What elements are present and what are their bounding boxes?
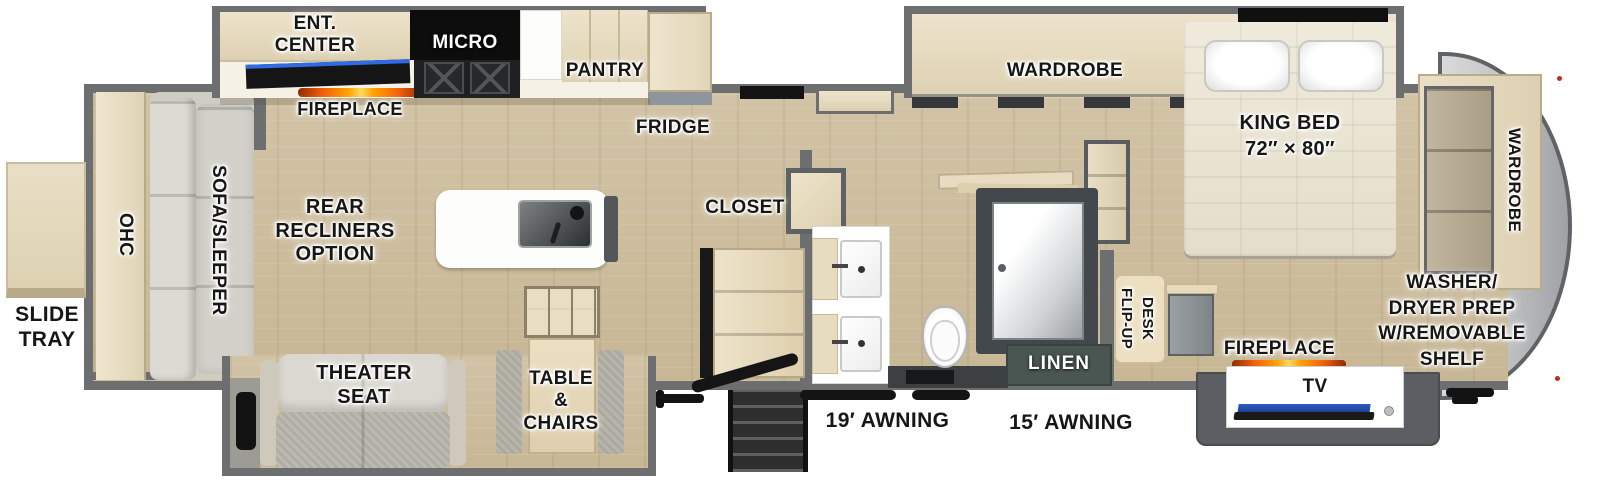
- landing-jack-foot: [1452, 396, 1478, 404]
- wardrobe-hanging-rods: [912, 94, 1190, 108]
- sink-top-drain: [858, 266, 865, 273]
- desk-bench: [1168, 294, 1214, 356]
- label-washer-dryer: WASHER/ DRYER PREP W/REMOVABLE SHELF: [1352, 270, 1552, 373]
- pillow-right: [1298, 40, 1384, 92]
- label-fridge: FRIDGE: [613, 117, 733, 139]
- sofa-backrest: [150, 98, 196, 380]
- clearance-light-top: [1557, 76, 1562, 81]
- theater-seats: [276, 412, 450, 468]
- label-flip-up-desk: FLIP-UP DESK: [1116, 276, 1164, 362]
- entry-steps: [728, 390, 808, 472]
- clearance-light-bottom: [1555, 376, 1560, 381]
- vanity-door-bottom: [812, 314, 838, 374]
- fridge-base: [648, 92, 712, 105]
- stove-grate-right: [470, 62, 510, 94]
- label-king-bed: KING BED: [1208, 112, 1372, 136]
- awning-bar-2: [912, 390, 970, 400]
- label-tv: TV: [1226, 376, 1404, 398]
- label-rear-recliners: REAR RECLINERS OPTION: [250, 196, 420, 267]
- exterior-tv-speaker: [1384, 406, 1394, 416]
- label-fireplace-bedroom: FIREPLACE: [1212, 338, 1347, 360]
- rv-floorplan: SLIDE TRAY OHC SOFA/SLEEPER ENT. CENTER …: [0, 0, 1600, 482]
- bath-counter-sink: [906, 370, 954, 384]
- label-slide-tray: SLIDE TRAY: [0, 303, 94, 353]
- island-faucet: [570, 206, 584, 220]
- pillow-left: [1204, 40, 1290, 92]
- toilet-bowl: [930, 320, 960, 362]
- label-wardrobe-front: WARDROBE: [1496, 105, 1524, 255]
- awning-arm-left: [660, 394, 704, 403]
- top-wall-cabinet: [816, 88, 894, 114]
- label-ohc: OHC: [104, 185, 136, 285]
- label-fireplace-kitchen: FIREPLACE: [284, 99, 416, 120]
- label-ent-center: ENT. CENTER: [220, 13, 410, 58]
- exterior-tv-base: [1233, 412, 1374, 420]
- label-sofa-sleeper: SOFA/SLEEPER: [197, 125, 229, 355]
- wall-vent: [740, 86, 804, 99]
- slide-tray: [6, 162, 86, 298]
- label-linen: LINEN: [1006, 353, 1112, 375]
- bedroom-dresser: [1424, 86, 1494, 274]
- bed-head-window: [1238, 8, 1388, 22]
- slide-side-window: [236, 392, 256, 450]
- shower-pan: [992, 202, 1084, 340]
- desk-shelf: [1166, 284, 1218, 294]
- theater-armrest-right: [448, 360, 466, 466]
- label-table-chairs: TABLE & CHAIRS: [502, 368, 620, 435]
- shower-knob: [998, 264, 1006, 272]
- stove-grate-left: [424, 62, 464, 94]
- label-awning-19: 19′ AWNING: [810, 409, 965, 434]
- label-theater-seat: THEATER SEAT: [288, 362, 440, 409]
- label-king-bed-size: 72″ × 80″: [1208, 138, 1372, 162]
- label-closet: CLOSET: [685, 197, 805, 219]
- entry-closet-pole: [700, 248, 713, 378]
- sink-bottom-faucet: [832, 340, 848, 344]
- label-wardrobe-slide: WARDROBE: [975, 60, 1155, 82]
- label-micro: MICRO: [410, 32, 520, 54]
- kitchen-fireplace-flame: [298, 88, 424, 97]
- awning-bar-1: [800, 390, 896, 400]
- label-awning-15: 15′ AWNING: [992, 411, 1150, 436]
- vanity-door-top: [812, 238, 838, 300]
- sink-bottom-drain: [858, 340, 865, 347]
- dinette-hutch: [524, 286, 600, 338]
- sink-top-faucet: [832, 264, 848, 268]
- island-end-panel: [604, 196, 618, 262]
- label-pantry: PANTRY: [545, 60, 665, 82]
